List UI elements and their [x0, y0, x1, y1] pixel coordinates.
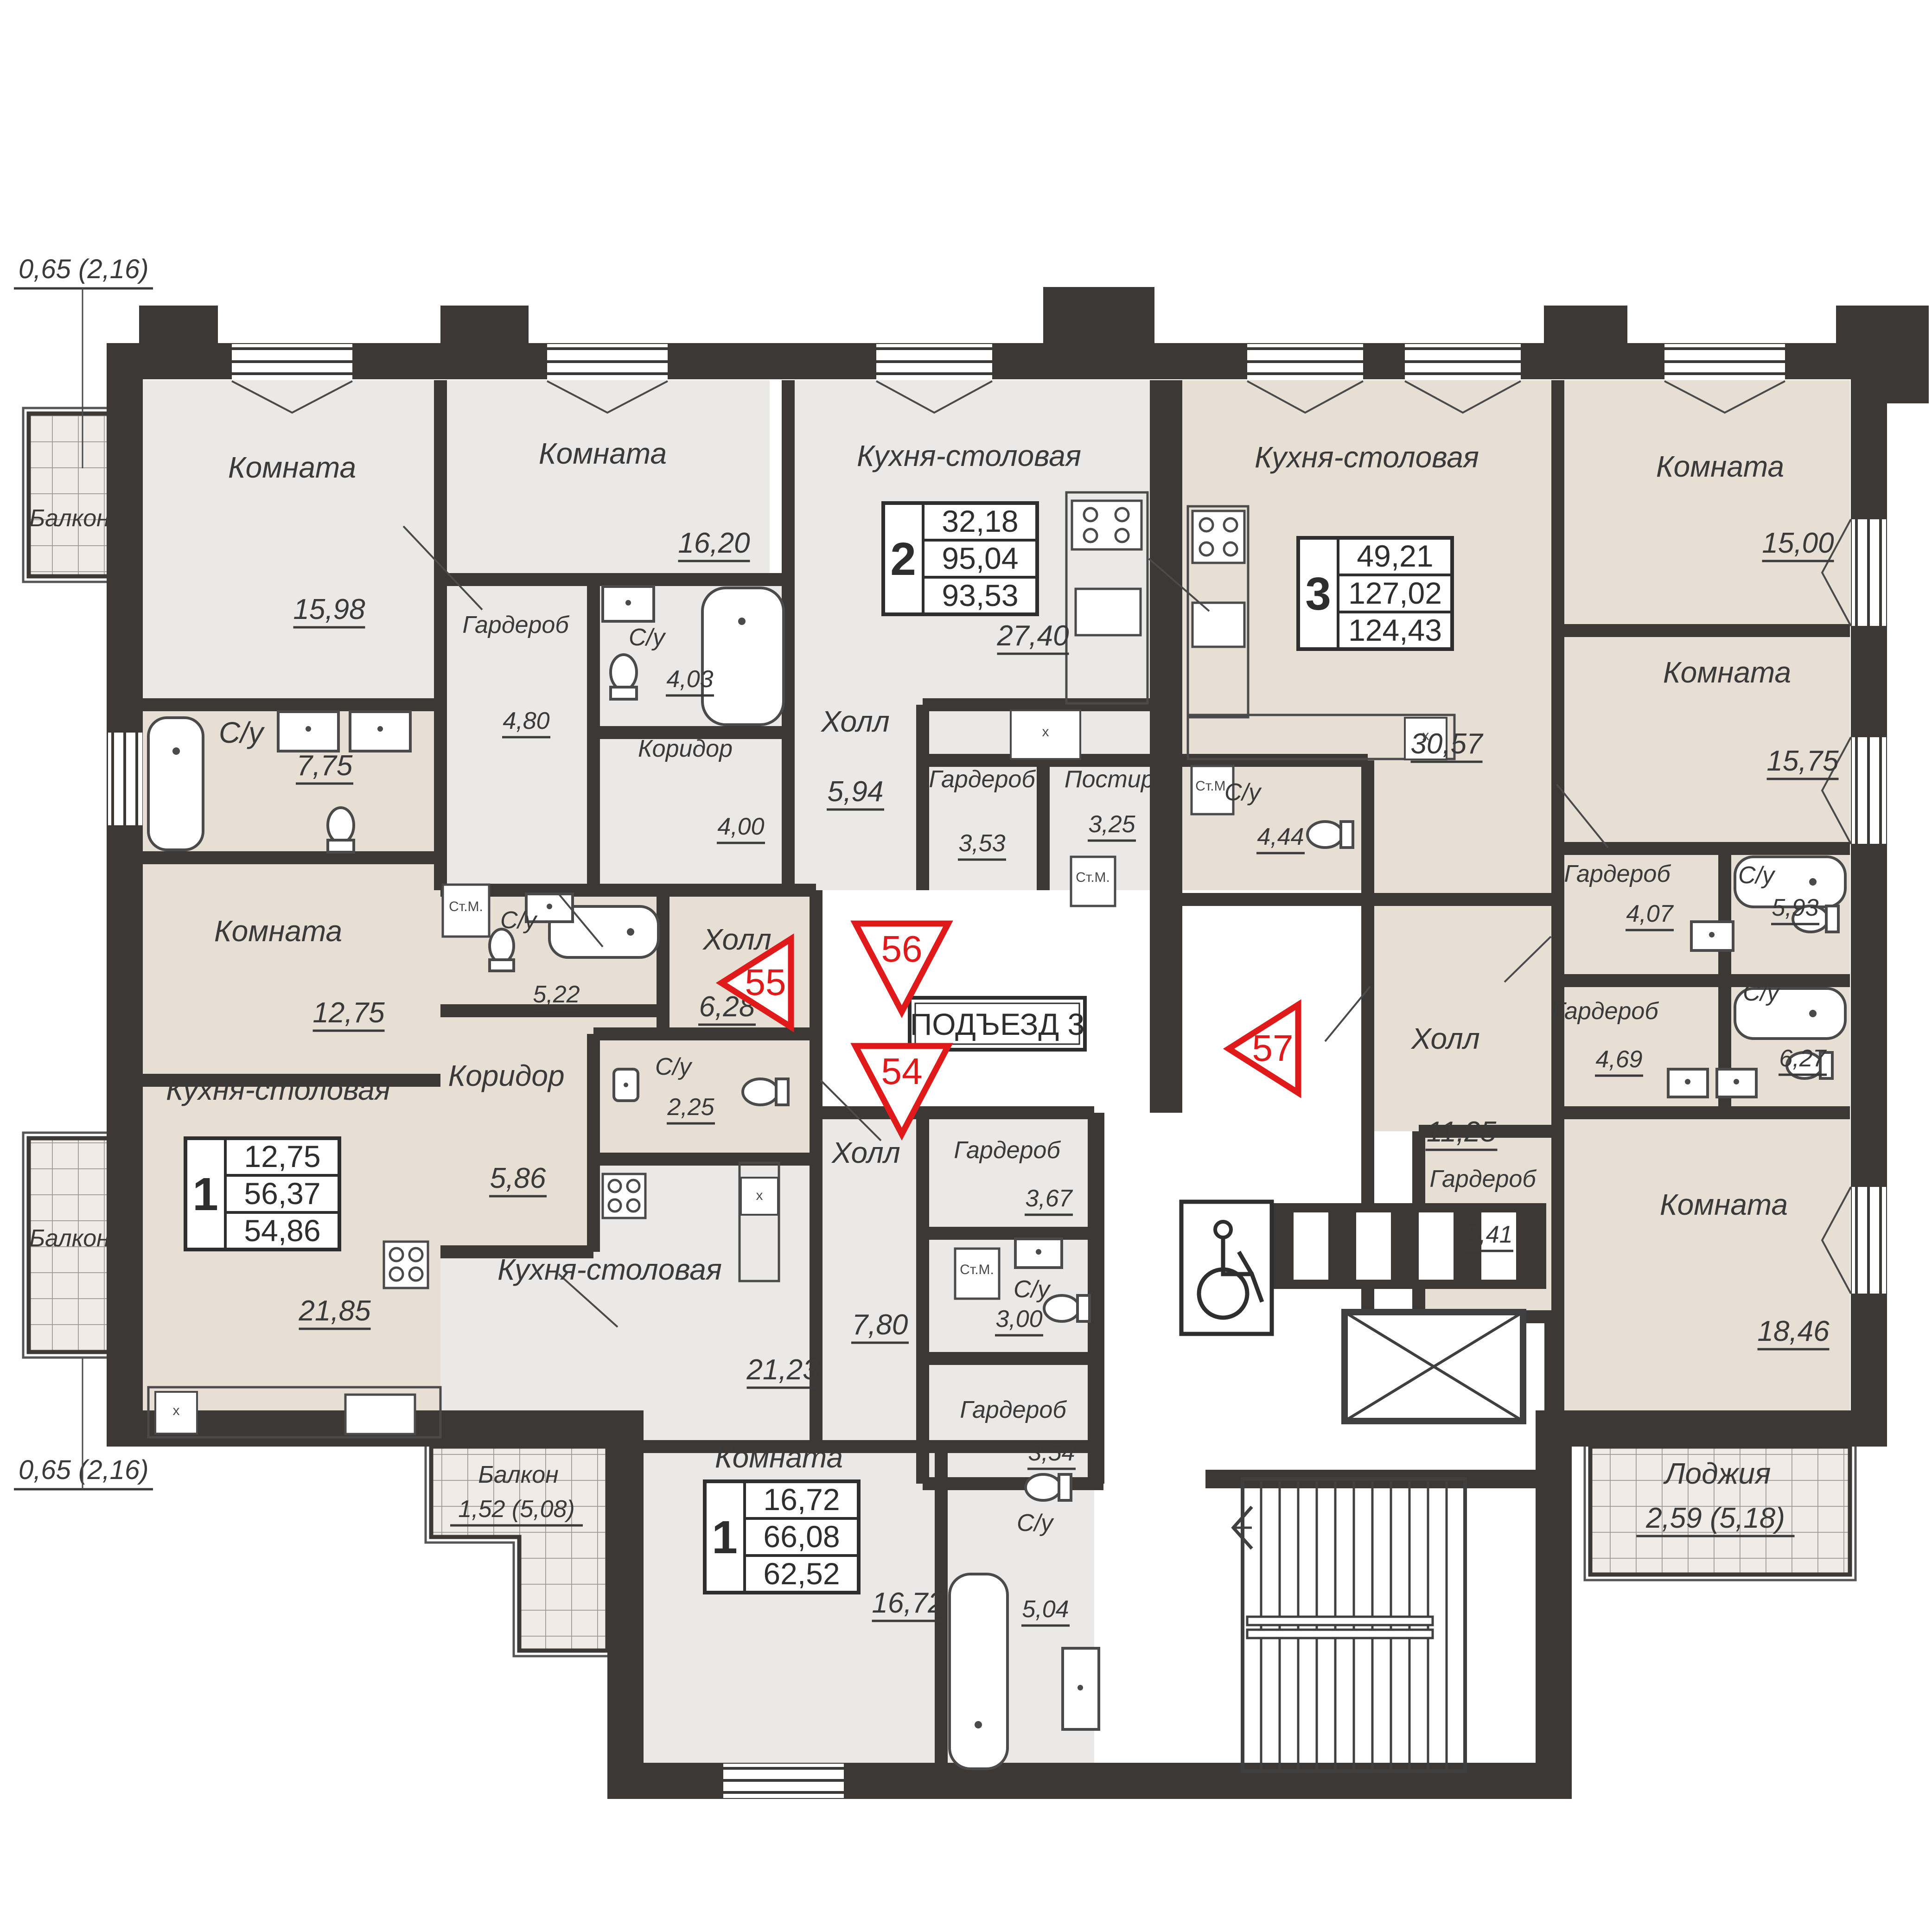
room-area: 7,75: [297, 750, 353, 782]
room-label: С/у: [1014, 1276, 1051, 1303]
room-label: Комната: [228, 451, 356, 484]
room-area: 3,67: [1025, 1185, 1073, 1212]
apartment-marker-number: 57: [1252, 1027, 1294, 1069]
room-label: Комната: [1656, 450, 1784, 483]
room-area: 30,57: [1410, 728, 1484, 760]
room-area: 11,25: [1427, 1116, 1497, 1148]
room-area: 5,22: [533, 981, 580, 1008]
room-area: 3,53: [958, 830, 1005, 857]
room-label: Холл: [820, 705, 890, 738]
room-label: Комната: [539, 437, 667, 470]
room-area: 21,85: [298, 1295, 371, 1327]
room-area: 5,93: [1772, 894, 1818, 921]
room-label: С/у: [655, 1053, 693, 1080]
apartment-area-value: 62,52: [763, 1556, 840, 1591]
apartment-area-value: 16,72: [763, 1482, 840, 1517]
room-area: 16,20: [678, 527, 750, 559]
apartment-marker-number: 54: [881, 1051, 923, 1092]
room-area: 12,75: [312, 997, 385, 1029]
room-label: Гардероб: [929, 766, 1036, 793]
room-area: 4,69: [1595, 1046, 1642, 1073]
svg-text:0,65 (2,16): 0,65 (2,16): [19, 254, 149, 284]
closet-label: х: [173, 1403, 180, 1418]
entrance-label-box: ПОДЪЕЗД 3: [910, 998, 1085, 1050]
room-area: 2,25: [667, 1094, 714, 1121]
apartment-area-value: 54,86: [244, 1213, 320, 1248]
elevator: [1345, 1312, 1523, 1421]
apartment-area-value: 56,37: [244, 1176, 320, 1211]
wheelchair-icon: [1181, 1202, 1272, 1334]
room-label: Кухня-столовая: [1255, 440, 1479, 474]
room-label: С/у: [1738, 862, 1776, 889]
room-label: Балкон: [29, 1225, 110, 1252]
washing-machine-label: Ст.М.: [960, 1262, 994, 1277]
svg-text:0,65 (2,16): 0,65 (2,16): [19, 1455, 149, 1485]
room-label: Холл: [831, 1136, 900, 1169]
room-label: С/у: [1017, 1510, 1054, 1537]
room-area: 4,80: [503, 708, 549, 734]
room-label: Гардероб: [1552, 998, 1659, 1025]
apartment-area-value: 93,53: [942, 578, 1018, 612]
room-label: Лоджия: [1663, 1457, 1771, 1490]
closet-label: х: [1422, 728, 1429, 743]
apartment-area-value: 127,02: [1348, 576, 1442, 610]
room-area: 6,27: [1779, 1045, 1827, 1072]
apartment-info-table: 116,7266,0862,52: [705, 1481, 859, 1593]
room-area: 2,59 (5,18): [1645, 1502, 1785, 1534]
apartment-rooms-count: 3: [1305, 568, 1331, 620]
room-label: Комната: [1663, 656, 1791, 689]
room-label: Кухня-столовая: [497, 1253, 722, 1286]
room-label: Гардероб: [1429, 1166, 1537, 1192]
room-label: С/у: [500, 907, 538, 934]
apartment-area-value: 66,08: [763, 1519, 840, 1554]
room-label: Постир.: [1065, 766, 1161, 793]
room-area: 7,80: [852, 1309, 908, 1341]
room-area: 21,23: [746, 1354, 818, 1386]
room-area: 15,00: [1762, 527, 1834, 559]
room-area: 4,07: [1626, 900, 1674, 927]
apartment-rooms-count: 1: [192, 1168, 218, 1220]
room-area: 5,04: [1022, 1596, 1069, 1623]
room-area: 3,00: [995, 1306, 1042, 1333]
room-label: С/у: [629, 624, 666, 651]
room-label: Гардероб: [960, 1396, 1067, 1423]
room-label: С/у: [1224, 779, 1262, 806]
room-area: 27,40: [996, 620, 1069, 652]
room-label: Комната: [214, 914, 342, 948]
room-label: Коридор: [448, 1059, 564, 1092]
apartment-area-value: 12,75: [244, 1139, 320, 1173]
apartment-area-value: 32,18: [942, 504, 1018, 538]
apartment-info-table: 232,1895,0493,53: [883, 503, 1037, 614]
room-area: 16,72: [872, 1587, 944, 1619]
entrance-label: ПОДЪЕЗД 3: [910, 1007, 1084, 1041]
room-label: Коридор: [638, 735, 733, 762]
room-label: Кухня-столовая: [857, 439, 1081, 472]
apartment-marker-number: 56: [881, 928, 923, 969]
floor-plan-drawing: ПОДЪЕЗД 3 0,65 (2,16) 0,65 (2,16) Комнат…: [0, 0, 1932, 1932]
floor-plan-page: ПОДЪЕЗД 3 0,65 (2,16) 0,65 (2,16) Комнат…: [0, 0, 1932, 1932]
room-label: Балкон: [478, 1461, 559, 1488]
room-label: С/у: [1743, 979, 1780, 1006]
room-area: 5,86: [490, 1162, 546, 1194]
room-area: 5,94: [828, 776, 884, 808]
apartment-area-value: 124,43: [1348, 613, 1442, 647]
room-label: Кухня-столовая: [166, 1073, 390, 1106]
room-area: 15,75: [1766, 745, 1839, 777]
room-area: 18,46: [1757, 1315, 1830, 1347]
apartment-rooms-count: 1: [712, 1511, 738, 1563]
room-area: 1,52 (5,08): [458, 1496, 575, 1523]
room-label: Гардероб: [954, 1137, 1061, 1164]
apartment-info-table: 112,7556,3754,86: [185, 1138, 339, 1250]
closet-label: х: [1042, 724, 1049, 740]
room-label: Холл: [1410, 1022, 1480, 1055]
room-area: 4,00: [717, 813, 764, 840]
room-label: Комната: [1660, 1188, 1788, 1221]
room-label: Гардероб: [462, 612, 569, 638]
room-area: 3,25: [1088, 811, 1135, 838]
room-area: 4,44: [1257, 823, 1304, 850]
room-area: 3,54: [1028, 1439, 1075, 1466]
apartment-info-table: 349,21127,02124,43: [1298, 538, 1452, 649]
washing-machine-label: Ст.М.: [1076, 870, 1110, 885]
apartment-rooms-count: 2: [890, 533, 916, 585]
washing-machine-label: Ст.М.: [449, 899, 483, 914]
room-area: 5,41: [1466, 1221, 1512, 1248]
room-label: Гардероб: [1564, 861, 1671, 887]
balcony-top-left: [23, 408, 116, 582]
room-area: 15,98: [293, 593, 365, 625]
apartment-area-value: 95,04: [942, 541, 1018, 575]
room-label: Комната: [715, 1441, 843, 1474]
room-label: Холл: [702, 923, 772, 956]
apartment-marker-number: 55: [745, 962, 786, 1003]
washing-machine-label: Ст.М.: [1195, 778, 1230, 794]
room-label: С/у: [219, 716, 265, 749]
apartment-area-value: 49,21: [1357, 539, 1433, 573]
room-label: Балкон: [29, 505, 110, 532]
closet-label: х: [756, 1188, 763, 1203]
room-area: 4,03: [666, 666, 713, 693]
